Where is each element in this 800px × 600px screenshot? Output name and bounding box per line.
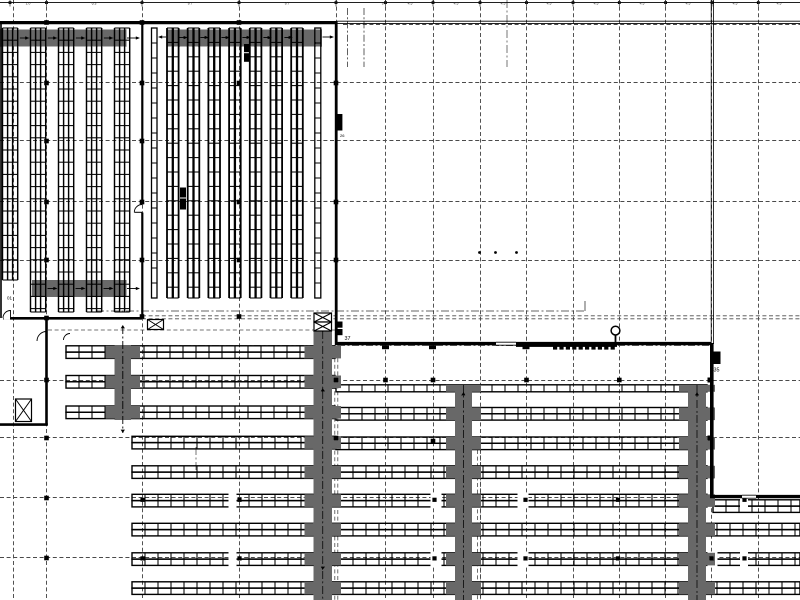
svg-text:4.5: 4.5 [640, 1, 645, 5]
svg-text:4.5: 4.5 [501, 1, 506, 5]
svg-text:4.5: 4.5 [547, 1, 552, 5]
svg-text:4.5: 4.5 [686, 1, 691, 5]
svg-text:4.5: 4.5 [454, 1, 459, 5]
svg-text:4.5: 4.5 [733, 1, 738, 5]
svg-text:6.3: 6.3 [92, 1, 97, 5]
svg-text:26: 26 [340, 133, 345, 138]
svg-text:4.5: 4.5 [408, 1, 413, 5]
svg-text:4.5: 4.5 [777, 1, 782, 5]
svg-text:9.7: 9.7 [285, 1, 290, 5]
svg-text:1.0: 1.0 [26, 1, 31, 5]
svg-text:4.5: 4.5 [594, 1, 599, 5]
svg-text:9.7: 9.7 [382, 1, 387, 5]
svg-text:9.7: 9.7 [188, 1, 193, 5]
svg-text:01: 01 [7, 296, 13, 301]
svg-text:35: 35 [714, 368, 720, 374]
svg-text:37: 37 [345, 336, 351, 342]
